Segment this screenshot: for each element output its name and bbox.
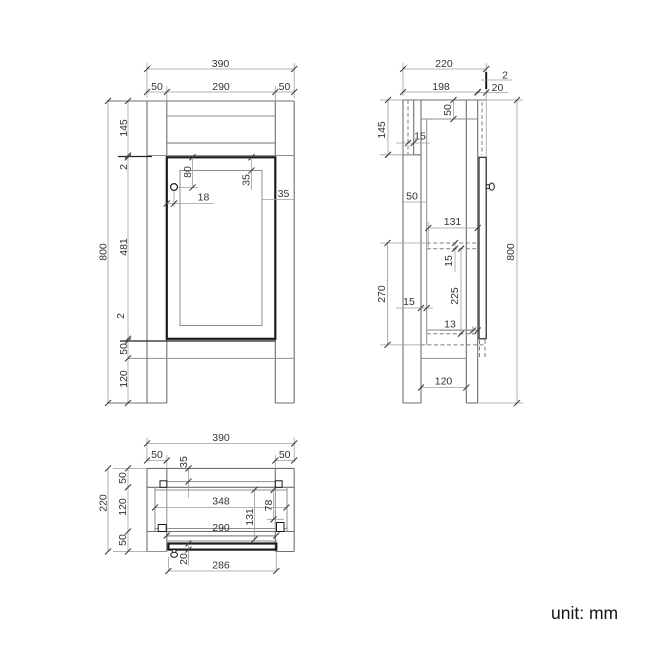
dim-side-back-rail-height: 145 bbox=[376, 121, 388, 139]
dim-plan-opening: 290 bbox=[212, 522, 230, 534]
plan-geometry bbox=[147, 468, 294, 557]
dim-front-door-stile: 35 bbox=[278, 188, 290, 200]
dim-side-shelf-span: 270 bbox=[376, 285, 388, 303]
drawing-page: 390 50 290 50 800 145 2 481 2 50 12 bbox=[0, 0, 650, 650]
dim-plan-interior-depth: 131 bbox=[244, 508, 256, 526]
door-panel bbox=[180, 171, 262, 326]
leg-notch-tl bbox=[160, 481, 167, 488]
dim-plan-door-thickness: 20 bbox=[178, 553, 190, 565]
dim-front-door-height: 481 bbox=[118, 238, 130, 256]
leg-notch-bl bbox=[158, 525, 166, 532]
dim-plan-right-post: 50 bbox=[279, 449, 291, 461]
dim-side-body-depth: 198 bbox=[432, 81, 450, 93]
dim-front-right-post: 50 bbox=[279, 81, 291, 93]
dim-front-door-top-rail: 35 bbox=[241, 174, 253, 186]
dim-side-side-panel: 15 bbox=[403, 296, 415, 308]
dim-front-opening: 290 bbox=[212, 81, 230, 93]
dim-front-total-width: 390 bbox=[212, 58, 230, 70]
dim-side-shelf-thickness: 15 bbox=[443, 255, 455, 267]
dim-front-overall-height: 800 bbox=[98, 243, 110, 261]
dim-side-door-thickness: 20 bbox=[492, 82, 504, 94]
door-knob-side bbox=[486, 183, 494, 190]
dim-front-handle-inset: 18 bbox=[198, 192, 210, 204]
dim-plan-total-width: 390 bbox=[212, 432, 230, 444]
dim-side-back-panel: 15 bbox=[414, 131, 426, 143]
dim-front-top-rail: 145 bbox=[118, 119, 130, 137]
dim-side-front-gap: 2 bbox=[502, 70, 508, 82]
dim-side-overall-height: 800 bbox=[505, 243, 517, 261]
dim-plan-mid-row: 120 bbox=[117, 498, 129, 516]
dim-front-top-gap: 2 bbox=[118, 164, 130, 170]
dim-plan-interior-width: 348 bbox=[212, 496, 230, 508]
side-view: 220 2 198 20 50 15 145 bbox=[376, 58, 523, 403]
dim-front-leg-height: 120 bbox=[118, 370, 130, 388]
dim-plan-front-row: 50 bbox=[117, 534, 129, 546]
dim-plan-back-row: 50 bbox=[117, 472, 129, 484]
dim-side-shelf-to-bottom: 225 bbox=[449, 287, 461, 305]
door-side-profile bbox=[479, 157, 486, 338]
front-view: 390 50 290 50 800 145 2 481 2 50 12 bbox=[98, 58, 295, 403]
door-knob-plan bbox=[171, 550, 178, 558]
dim-side-interior-depth: 131 bbox=[444, 216, 462, 228]
dim-plan-door-width: 286 bbox=[212, 560, 230, 572]
technical-drawing: 390 50 290 50 800 145 2 481 2 50 12 bbox=[0, 0, 650, 650]
door-plan bbox=[168, 544, 276, 550]
dim-front-bottom-gap: 2 bbox=[115, 313, 127, 319]
door-front bbox=[167, 157, 275, 338]
dim-plan-left-post: 50 bbox=[151, 449, 163, 461]
front-geometry bbox=[107, 101, 294, 403]
dim-plan-back-inset: 35 bbox=[178, 456, 190, 468]
dim-side-total-depth: 220 bbox=[435, 58, 453, 70]
dim-side-leg-clear: 120 bbox=[435, 376, 453, 388]
dim-side-front-rail: 13 bbox=[444, 319, 456, 331]
dim-side-leg-depth: 50 bbox=[406, 191, 418, 203]
dim-front-left-post: 50 bbox=[151, 81, 163, 93]
dim-plan-corner-depth: 78 bbox=[263, 500, 275, 512]
plan-view: 390 50 50 35 220 50 120 50 bbox=[98, 432, 295, 572]
door-knob bbox=[171, 184, 178, 191]
dim-front-bottom-rail: 50 bbox=[118, 343, 130, 355]
side-dimensions: 220 2 198 20 50 15 145 bbox=[376, 58, 517, 403]
front-dimensions: 390 50 290 50 800 145 2 481 2 50 12 bbox=[98, 58, 295, 403]
dim-side-top-rail-depth: 50 bbox=[442, 104, 454, 116]
unit-label: unit: mm bbox=[551, 603, 618, 623]
dim-plan-total-depth: 220 bbox=[98, 494, 110, 512]
dim-front-handle-drop: 80 bbox=[182, 166, 194, 178]
leg-notch-br bbox=[277, 523, 285, 532]
leg-notch-tr bbox=[275, 481, 282, 488]
